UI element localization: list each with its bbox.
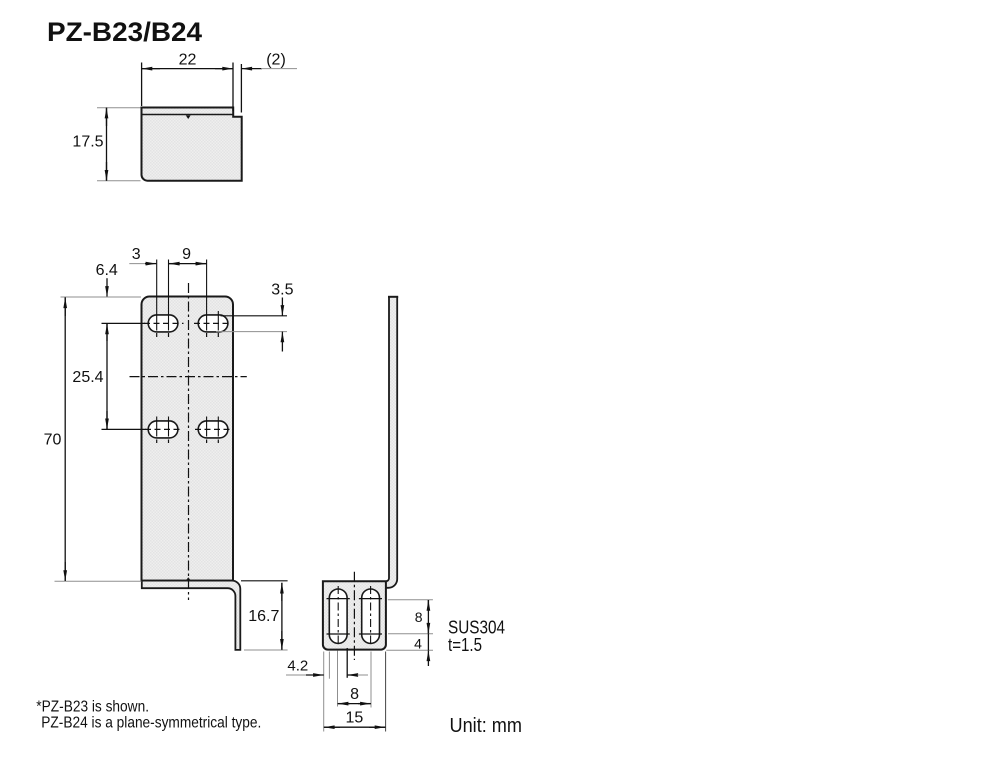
svg-text:22: 22 xyxy=(179,52,197,69)
svg-text:(2): (2) xyxy=(266,52,286,69)
svg-text:Unit: mm: Unit: mm xyxy=(450,715,523,737)
svg-text:*PZ-B23 is shown.: *PZ-B23 is shown. xyxy=(36,698,149,715)
svg-text:PZ-B24 is a plane-symmetrical: PZ-B24 is a plane-symmetrical type. xyxy=(41,715,261,732)
svg-text:t=1.5: t=1.5 xyxy=(448,635,482,655)
svg-text:16.7: 16.7 xyxy=(248,608,279,625)
svg-text:70: 70 xyxy=(44,432,62,449)
svg-text:6.4: 6.4 xyxy=(96,262,118,279)
svg-text:9: 9 xyxy=(182,246,191,263)
svg-text:15: 15 xyxy=(346,710,364,727)
svg-text:3: 3 xyxy=(132,246,141,263)
svg-text:25.4: 25.4 xyxy=(72,369,103,386)
svg-text:PZ-B23/B24: PZ-B23/B24 xyxy=(47,17,202,47)
svg-text:3.5: 3.5 xyxy=(271,282,293,299)
svg-text:4.2: 4.2 xyxy=(287,657,308,674)
svg-text:17.5: 17.5 xyxy=(72,133,103,150)
svg-text:8: 8 xyxy=(350,686,359,703)
svg-text:4: 4 xyxy=(414,636,422,652)
svg-text:8: 8 xyxy=(415,609,423,625)
